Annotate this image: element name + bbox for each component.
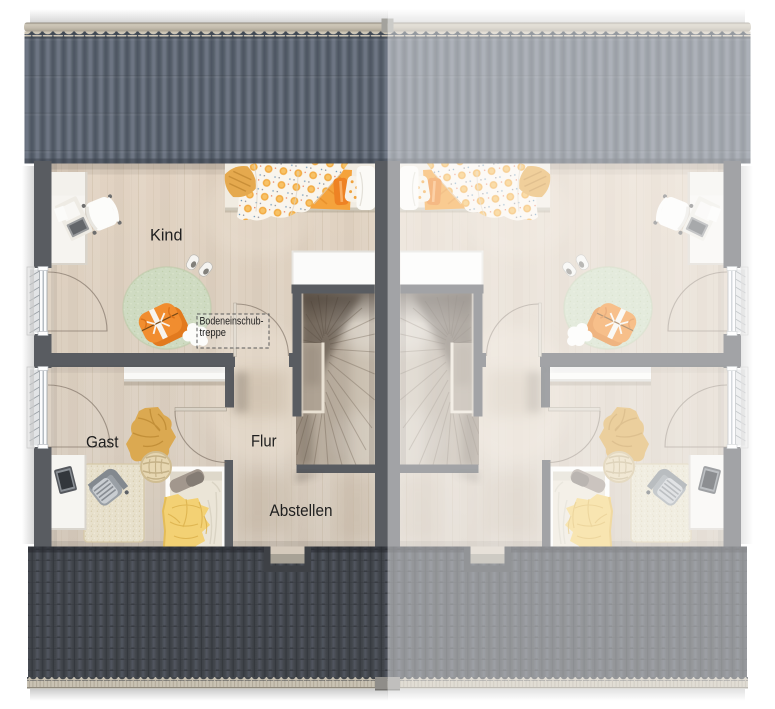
svg-text:Kind: Kind (150, 227, 183, 245)
svg-text:Gast: Gast (86, 434, 119, 452)
svg-text:Flur: Flur (251, 433, 277, 451)
svg-text:treppe: treppe (200, 327, 227, 339)
svg-text:Abstellen: Abstellen (270, 502, 333, 520)
svg-text:Bodeneinschub-: Bodeneinschub- (200, 316, 264, 328)
